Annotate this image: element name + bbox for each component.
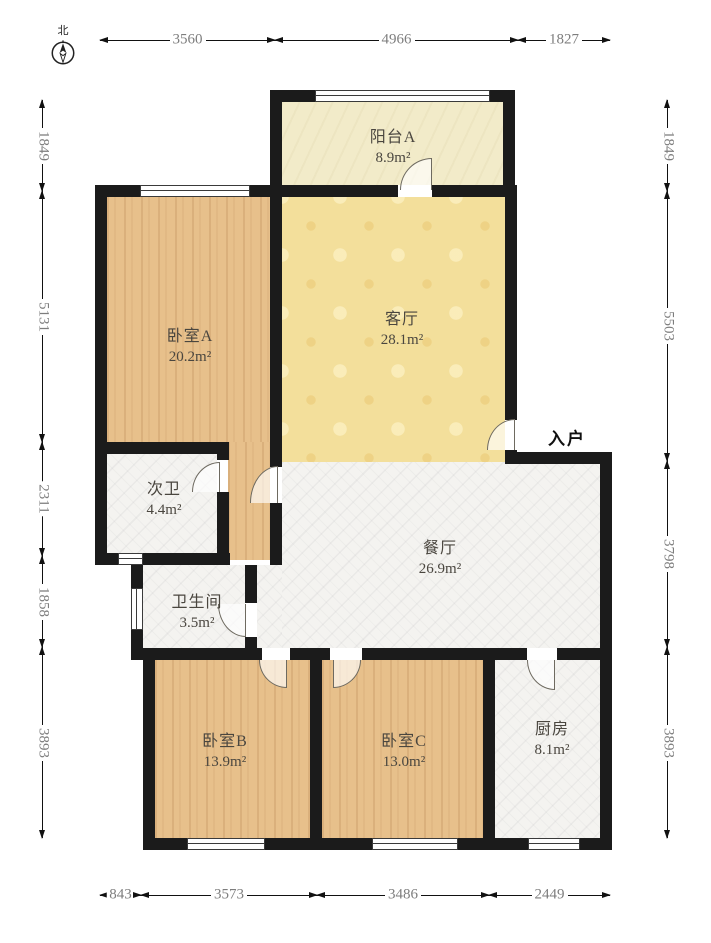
floor-plan: 北 — [0, 0, 711, 943]
dimension-right-4: 3893 — [667, 647, 668, 838]
room-label-bedroom-c: 卧室C 13.0m² — [381, 732, 427, 772]
wall — [265, 838, 372, 850]
dimension-right-2: 5503 — [667, 191, 668, 461]
room-label-living-room: 客厅 28.1m² — [381, 310, 423, 350]
dimension-bottom-3: 3486 — [317, 895, 489, 896]
wall — [131, 565, 143, 588]
wall — [270, 442, 282, 467]
entrance-label: 入户 — [548, 425, 586, 450]
dimension-left-4: 1858 — [42, 556, 43, 647]
window — [140, 185, 250, 197]
dimension-left-2: 5131 — [42, 191, 43, 442]
wall — [458, 838, 528, 850]
dimension-top-2: 4966 — [275, 40, 518, 41]
floor-dining-room — [257, 565, 282, 648]
wall — [362, 648, 527, 660]
wall — [143, 648, 155, 850]
wall — [131, 630, 143, 660]
wall — [505, 450, 517, 464]
window — [528, 838, 580, 850]
window — [315, 90, 490, 102]
dimension-bottom-2: 3573 — [141, 895, 317, 896]
floor-bedroom-a — [107, 197, 270, 442]
wall — [245, 565, 257, 603]
wall — [95, 442, 228, 454]
room-label-balcony-a: 阳台A 8.9m² — [370, 128, 417, 168]
dimension-bottom-4: 2449 — [489, 895, 610, 896]
wall — [505, 185, 517, 420]
wall — [245, 637, 257, 660]
window — [372, 838, 458, 850]
wall — [517, 452, 612, 464]
wall — [290, 648, 330, 660]
compass-icon — [49, 54, 77, 71]
room-label-bedroom-b: 卧室B 13.9m² — [202, 732, 248, 772]
wall — [270, 90, 282, 197]
window — [118, 553, 143, 565]
wall — [600, 452, 612, 850]
wall — [217, 492, 229, 553]
window — [131, 588, 143, 630]
dimension-left-3: 2311 — [42, 442, 43, 556]
wall — [270, 503, 282, 565]
room-label-bathroom: 卫生间 3.5m² — [171, 593, 222, 633]
dimension-right-1: 1849 — [667, 100, 668, 191]
compass: 北 — [47, 26, 79, 72]
wall — [95, 185, 107, 565]
dimension-top-3: 1827 — [518, 40, 610, 41]
room-label-second-bath: 次卫 4.4m² — [147, 480, 182, 520]
wall — [270, 185, 282, 442]
room-label-kitchen: 厨房 8.1m² — [535, 720, 570, 760]
wall — [217, 442, 229, 460]
dimension-left-5: 3893 — [42, 647, 43, 838]
dimension-right-3: 3798 — [667, 461, 668, 647]
wall — [143, 553, 230, 565]
north-label: 北 — [47, 26, 79, 37]
dimension-bottom-1: 843 — [100, 895, 141, 896]
room-label-bedroom-a: 卧室A 20.2m² — [167, 327, 214, 367]
window — [187, 838, 265, 850]
wall — [310, 660, 322, 838]
dimension-top-1: 3560 — [100, 40, 275, 41]
room-label-dining-room: 餐厅 26.9m² — [419, 539, 461, 579]
dimension-left-1: 1849 — [42, 100, 43, 191]
wall — [483, 660, 495, 838]
wall — [503, 90, 515, 197]
